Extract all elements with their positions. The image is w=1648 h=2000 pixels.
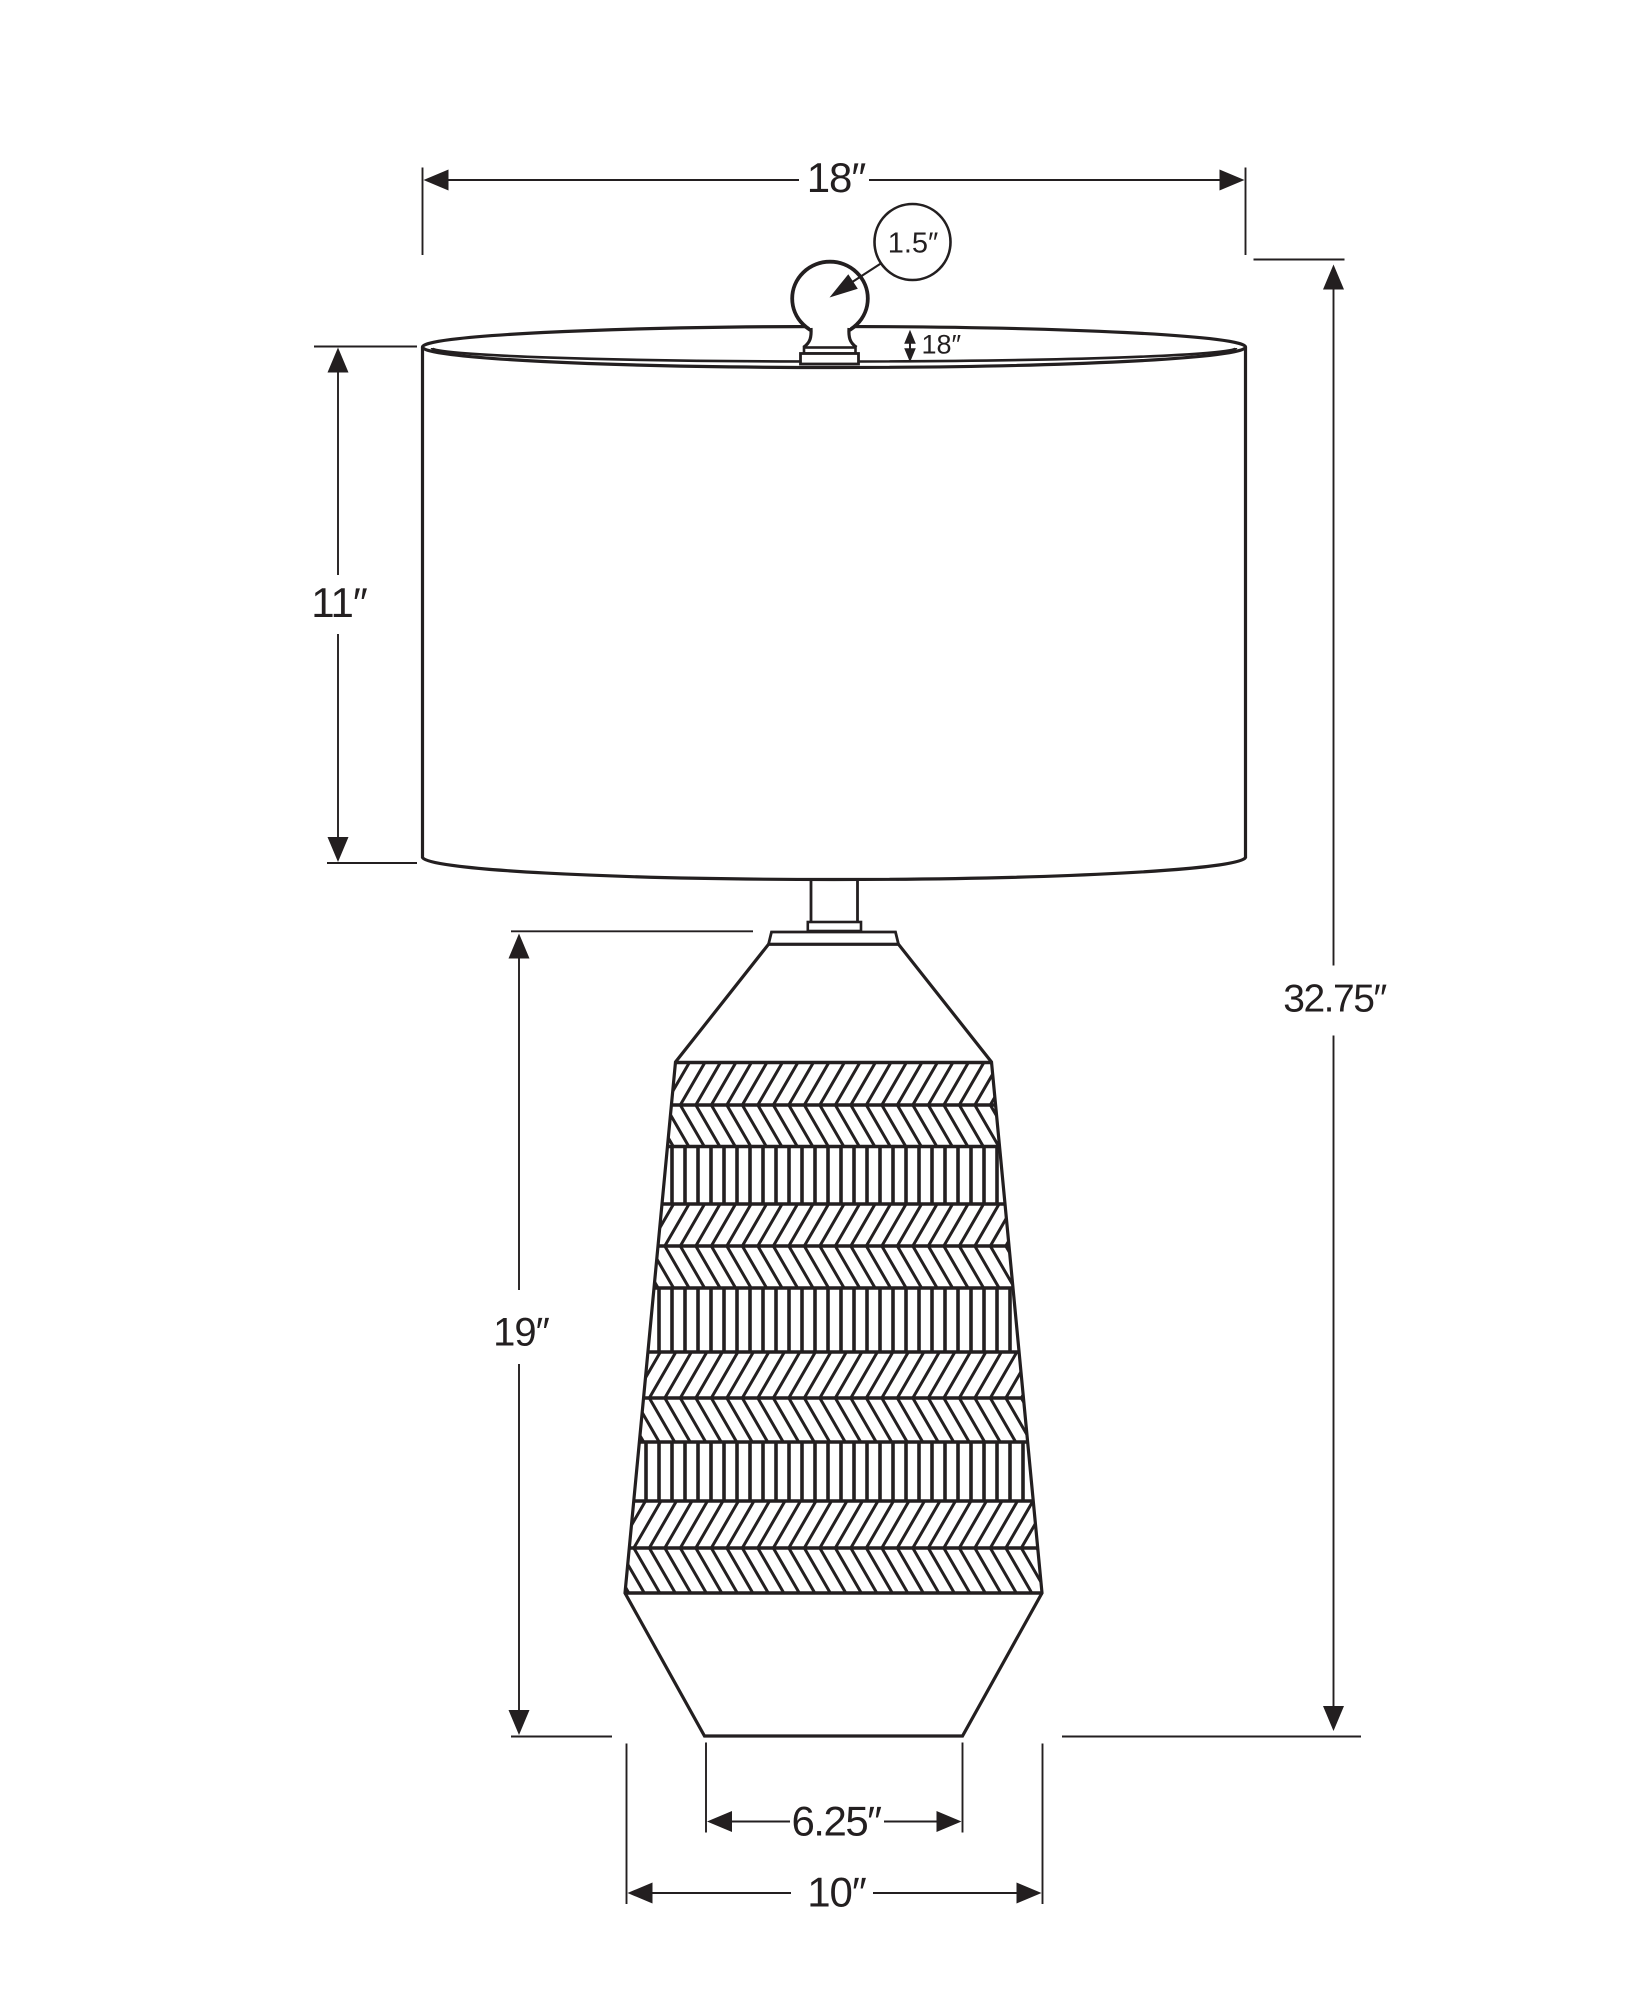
svg-text:18″: 18″ (807, 154, 867, 201)
svg-text:19″: 19″ (493, 1311, 549, 1355)
svg-text:10″: 10″ (807, 1869, 867, 1916)
svg-text:32.75″: 32.75″ (1283, 978, 1387, 1021)
svg-text:6.25″: 6.25″ (791, 1798, 882, 1845)
svg-text:1.5″: 1.5″ (888, 228, 939, 260)
svg-text:11″: 11″ (311, 579, 368, 626)
svg-text:18″: 18″ (922, 330, 962, 360)
